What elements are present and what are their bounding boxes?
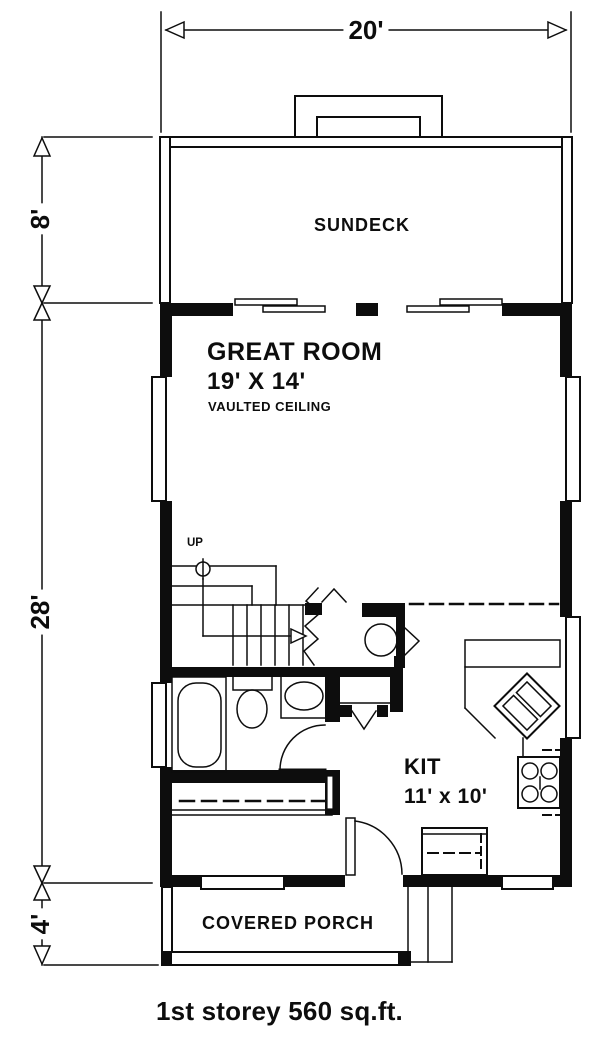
dimension-left-column: [34, 137, 158, 965]
interior-walls: [160, 603, 405, 815]
arrowhead-icon: [34, 286, 50, 303]
sundeck-label: SUNDECK: [314, 216, 410, 234]
kitchen-size: 11' x 10': [404, 786, 487, 807]
kitchen-sink: [494, 673, 559, 738]
porch-steps: [408, 887, 452, 962]
water-heater-icon: [365, 624, 397, 656]
floor-plan-sheet: 20' 8' 28' 4' SUNDECK GREAT ROOM 19' X 1…: [0, 0, 600, 1046]
arrowhead-down-icon: [34, 946, 50, 964]
arrowhead-right-icon: [548, 22, 566, 38]
bath-door-arc: [280, 725, 325, 770]
pocket-slot: [327, 776, 333, 809]
window: [566, 617, 580, 738]
arrowhead-icon: [34, 866, 50, 883]
kitchen-fixtures: [422, 640, 560, 875]
slider-panel: [407, 306, 469, 312]
closet-foot: [377, 705, 388, 717]
water-heater: [365, 624, 419, 656]
bathtub: [178, 683, 221, 767]
slider-panel: [263, 306, 325, 312]
burner-icon: [541, 763, 557, 779]
slider-panel: [235, 299, 297, 305]
floor-plan-drawing: [0, 0, 600, 1046]
arrowhead-icon: [34, 303, 50, 320]
entry-door-arc: [355, 821, 402, 874]
covered-porch-label: COVERED PORCH: [202, 914, 374, 932]
sundeck-walls: [160, 96, 572, 303]
great-room-label: GREAT ROOM: [207, 340, 382, 365]
staircase: [172, 559, 346, 665]
sundeck-step-inner: [317, 117, 420, 137]
closet-stub-left: [330, 677, 340, 722]
arrowhead-icon: [34, 883, 50, 900]
window: [152, 377, 166, 501]
dimension-overall-width: 20': [343, 17, 388, 43]
slider-panel: [440, 299, 502, 305]
toilet: [237, 690, 267, 728]
angled-door: [405, 628, 419, 655]
utility-wall-stub: [362, 603, 405, 617]
utility-wall-foot: [394, 656, 405, 668]
great-room-note: VAULTED CEILING: [208, 400, 331, 413]
kitchen-label: KIT: [404, 756, 441, 778]
break-caret-icon: [322, 589, 346, 602]
bathroom: [172, 675, 328, 772]
arrowhead-left-icon: [166, 22, 184, 38]
bifold-door-icon: [352, 711, 376, 729]
closet-top-wall: [320, 667, 403, 677]
window: [502, 876, 553, 889]
counter-top-run: [465, 640, 560, 667]
entry-door-leaf: [346, 818, 355, 875]
window: [152, 683, 166, 767]
dimension-sundeck-depth: 8': [27, 204, 53, 235]
break-line-icon: [304, 588, 320, 665]
plan-caption: 1st storey 560 sq.ft.: [156, 998, 403, 1024]
hall-closet: [172, 801, 332, 815]
window: [201, 876, 284, 889]
arrowhead-up-icon: [34, 138, 50, 156]
dimension-porch-depth: 4': [27, 909, 53, 940]
refrigerator: [422, 828, 487, 875]
burner-icon: [541, 786, 557, 802]
stairs-up-label: UP: [187, 538, 203, 550]
window: [566, 377, 580, 501]
dimension-house-depth: 28': [27, 589, 53, 634]
burner-icon: [522, 786, 538, 802]
vanity-sink: [285, 682, 323, 710]
closet-foot: [340, 705, 352, 717]
burner-icon: [522, 763, 538, 779]
entry-door: [346, 818, 402, 875]
great-room-size: 19' X 14': [207, 370, 306, 394]
toilet-tank: [233, 675, 272, 690]
closet-stub-right: [390, 677, 403, 712]
